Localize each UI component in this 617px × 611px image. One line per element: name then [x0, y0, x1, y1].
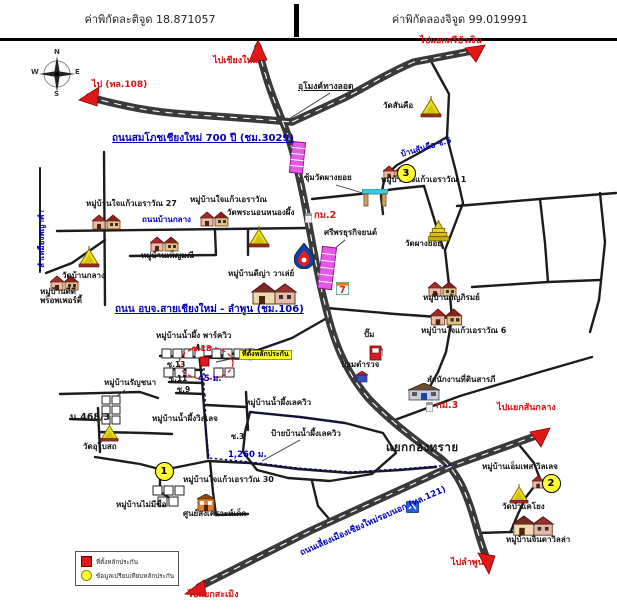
direction-arrows	[79, 40, 550, 596]
village-houses-icon-kanphirom	[428, 282, 456, 296]
label-pointer-lines	[88, 93, 450, 464]
police-box-icon	[356, 371, 368, 382]
temple-icon-pakaeyong	[510, 484, 528, 503]
child-center-building-icon	[197, 494, 215, 511]
compass-north-label: N	[54, 48, 60, 56]
land-office-building-icon	[408, 383, 440, 400]
village-houses-icon-phenmani	[150, 237, 178, 251]
legend-collateral-label: ที่ตั้งหลักประกัน	[96, 557, 138, 567]
compass-west-label: W	[31, 68, 39, 76]
map-page: ค่าพิกัดละติจูด 18.871057 ค่าพิกัดลองจิจ…	[0, 0, 617, 611]
legend-comparison-label: ข้อมูลเปรียบเทียบหลักประกัน	[96, 571, 174, 581]
km-milestone-icon	[305, 213, 312, 223]
village-houses-icon-jaikaew27	[92, 215, 120, 229]
village-houses-icon-empes	[532, 476, 556, 488]
shophouse-strip-icon	[289, 141, 305, 173]
compass-south-label: S	[54, 90, 59, 98]
major-road-network	[89, 47, 541, 587]
highway-shield-icon	[406, 501, 419, 513]
legend-comparison-icon	[81, 570, 92, 581]
compass-east-label: E	[75, 68, 80, 76]
arrow-to-lamphun	[478, 553, 495, 574]
sketch-map-canvas: 7	[0, 0, 617, 611]
minor-road-network	[40, 63, 616, 533]
temple-gate-icon	[362, 189, 388, 206]
arrow-to-108	[79, 87, 99, 106]
plot-grid-ranchana	[102, 396, 120, 424]
map-legend: ที่ตั้งหลักประกัน ข้อมูลเปรียบเทียบหลักป…	[75, 551, 179, 586]
collateral-location-marker	[200, 357, 209, 366]
village-houses-icon-jaikaew	[200, 212, 228, 226]
large-house-icon-dya	[252, 283, 296, 304]
temple-icon-sankue	[421, 96, 441, 117]
pagoda-icon-phangyoi	[428, 220, 449, 241]
arrow-to-samoeng	[185, 580, 206, 596]
compass-rose-icon	[39, 56, 75, 92]
arrow-to-chiangmai	[249, 40, 267, 62]
legend-collateral-icon	[81, 556, 92, 567]
km-milestone-icon	[426, 402, 433, 412]
village-houses-icon-dd	[50, 276, 78, 290]
seven-eleven-icon	[336, 282, 349, 296]
shophouse-strip-icon	[317, 246, 336, 289]
fuel-pump-icon	[370, 346, 383, 360]
large-house-icon-jinda	[513, 516, 553, 535]
